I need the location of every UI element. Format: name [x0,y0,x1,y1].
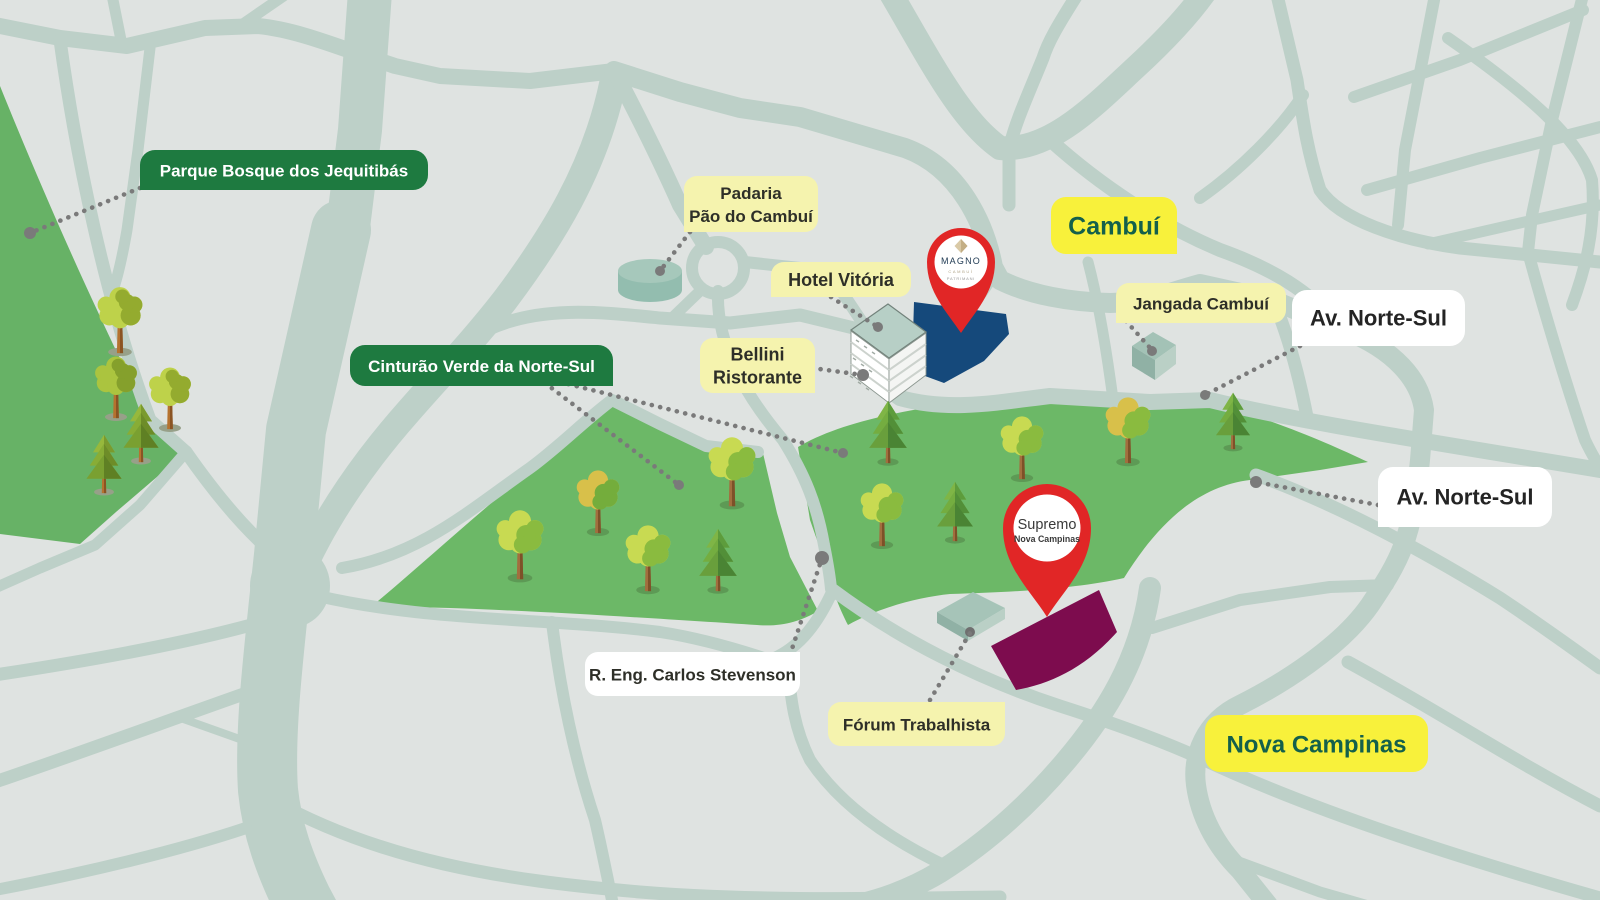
svg-text:Av. Norte-Sul: Av. Norte-Sul [1397,485,1534,510]
svg-text:Av. Norte-Sul: Av. Norte-Sul [1310,306,1447,331]
svg-text:R. Eng. Carlos Stevenson: R. Eng. Carlos Stevenson [589,666,796,685]
svg-text:Cinturão Verde da Norte-Sul: Cinturão Verde da Norte-Sul [368,357,595,376]
svg-text:Ristorante: Ristorante [713,367,802,387]
svg-text:Nova Campinas: Nova Campinas [1226,732,1406,759]
svg-text:Padaria: Padaria [720,184,782,203]
svg-text:Hotel Vitória: Hotel Vitória [788,270,895,290]
svg-text:CAMBUÍ: CAMBUÍ [948,269,973,274]
svg-text:Cambuí: Cambuí [1068,213,1161,241]
svg-text:PATRIMANI: PATRIMANI [947,276,975,281]
svg-text:Supremo: Supremo [1018,517,1077,533]
svg-text:Jangada Cambuí: Jangada Cambuí [1133,295,1270,314]
svg-text:Fórum Trabalhista: Fórum Trabalhista [843,716,991,735]
svg-text:Pão do Cambuí: Pão do Cambuí [689,207,814,226]
svg-text:Bellini: Bellini [730,344,784,364]
svg-text:Nova Campinas: Nova Campinas [1014,534,1080,544]
svg-text:Parque Bosque dos Jequitibás: Parque Bosque dos Jequitibás [160,162,408,181]
svg-text:MAGNO: MAGNO [941,256,981,266]
